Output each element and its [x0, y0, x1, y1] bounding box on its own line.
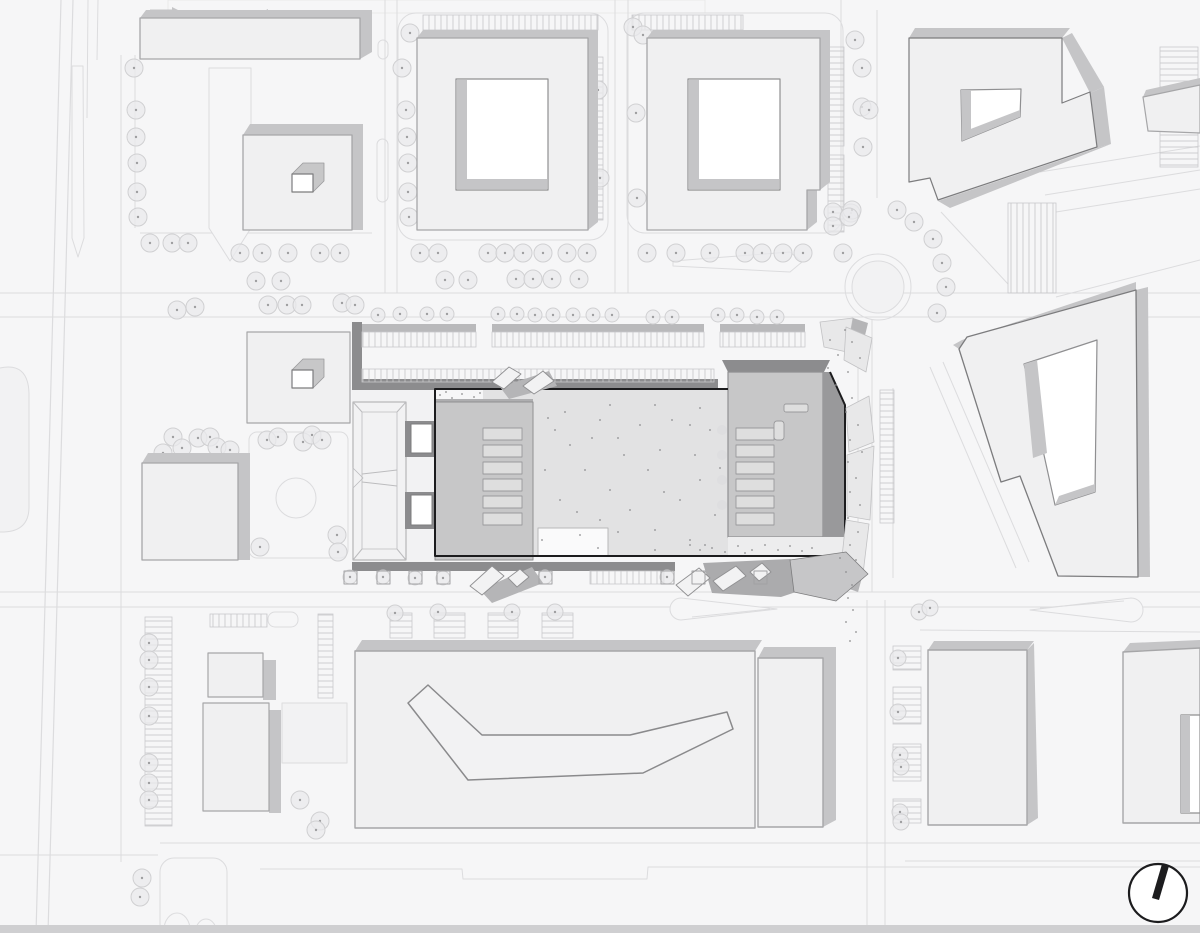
building-north-square — [243, 124, 363, 230]
building-west-square — [142, 453, 250, 560]
building-plaza-square — [247, 332, 350, 423]
building-south-slab — [355, 640, 836, 828]
north-arrow — [1129, 864, 1187, 922]
site-plan-page — [0, 0, 1200, 933]
site-plan-canvas — [0, 0, 1200, 933]
building-courtyard-west — [417, 30, 598, 230]
south-road-band — [0, 925, 1200, 933]
building-southeast — [928, 641, 1038, 825]
building-north-bar — [140, 10, 372, 59]
building-southeast-edge — [1123, 640, 1200, 823]
building-courtyard-east — [647, 30, 830, 230]
